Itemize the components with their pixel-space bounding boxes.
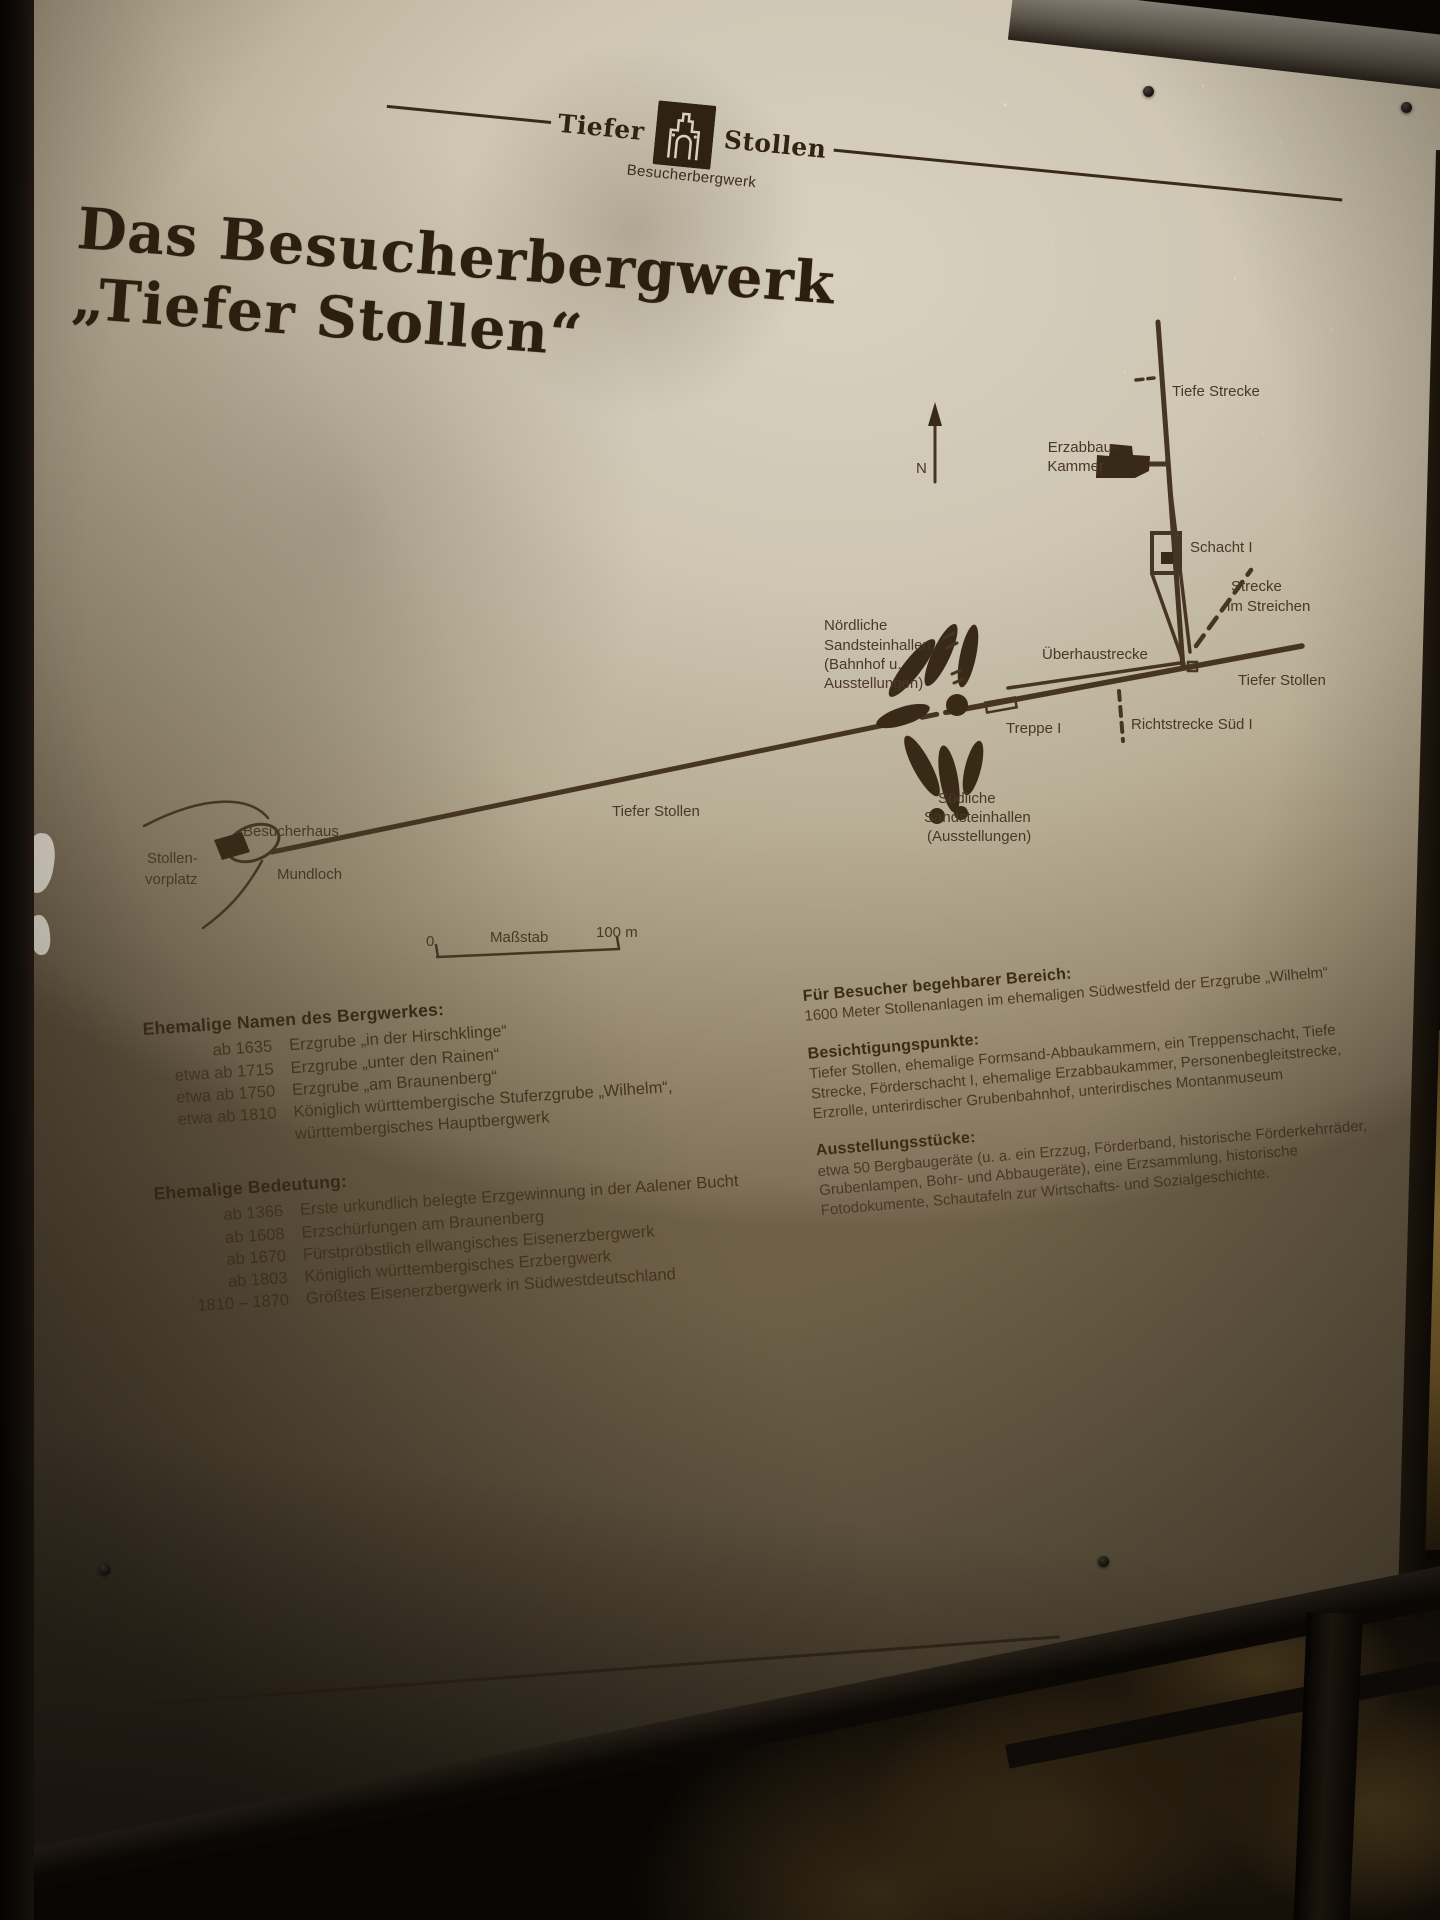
history-section: Ehemalige Namen des Bergwerkes: ab 1635 … [142, 975, 809, 1319]
frame-left-strip [0, 0, 34, 1920]
map-line-tiefer-stollen-west [272, 727, 875, 852]
map-line-stub [1136, 378, 1154, 380]
frame-leg-left [368, 1818, 438, 1920]
north-arrow-icon [928, 402, 942, 482]
map-label-suedliche-2: Sandsteinhallen [924, 809, 1031, 826]
map-label-suedliche-3: (Ausstellungen) [927, 828, 1031, 845]
map-scale-caption: Maßstab [490, 929, 548, 946]
map-schacht-fill [1161, 552, 1173, 564]
map-label-besucherhaus: Besucherhaus [243, 823, 339, 840]
visitor-info-section: Für Besucher begehbarer Bereich: 1600 Me… [802, 938, 1389, 1238]
cave-photo: Tiefer Stollen Besucherbergwerk Das Besu… [0, 0, 1440, 1920]
map-label-suedliche-1: Südliche [938, 790, 996, 807]
map-label-mundloch: Mundloch [277, 866, 342, 883]
map-label-noerdliche-3: (Bahnhof u. [824, 656, 902, 673]
map-scale-hundred: 100 m [596, 924, 638, 941]
map-label-schacht-i: Schacht I [1190, 539, 1253, 556]
map-label-erzabbau-1: Erzabbau- [1048, 439, 1117, 456]
map-label-noerdliche-1: Nördliche [824, 617, 887, 634]
map-label-noerdliche-2: Sandsteinhallen [824, 637, 931, 654]
screw-icon [99, 1564, 110, 1575]
map-line-richtstrecke-sued [1119, 691, 1123, 741]
map-entrance-path [203, 861, 262, 928]
map-scale-zero: 0 [426, 933, 434, 950]
screw-icon [1401, 102, 1412, 113]
map-label-treppe-i: Treppe I [1006, 720, 1061, 737]
map-label-erzabbau-2: Kammer [1047, 458, 1104, 475]
screw-icon [1098, 1556, 1109, 1567]
map-label-tiefer-stollen-right: Tiefer Stollen [1238, 672, 1326, 689]
map-label-streichen-1: Strecke [1231, 578, 1282, 595]
map-label-stollenvorplatz-1: Stollen- [147, 850, 198, 867]
map-label-tiefe-strecke: Tiefe Strecke [1172, 383, 1260, 400]
map-label-ueberhaustrecke: Überhaustrecke [1042, 645, 1148, 663]
map-label-tiefer-stollen-mid: Tiefer Stollen [612, 803, 700, 820]
map-label-richtstrecke: Richtstrecke Süd I [1131, 716, 1253, 733]
map-label-streichen-2: im Streichen [1227, 598, 1310, 615]
screw-icon [1143, 86, 1154, 97]
map-label-north: N [916, 460, 927, 477]
map-label-stollenvorplatz-2: vorplatz [145, 871, 198, 888]
map-label-noerdliche-4: Ausstellungen) [824, 675, 923, 692]
